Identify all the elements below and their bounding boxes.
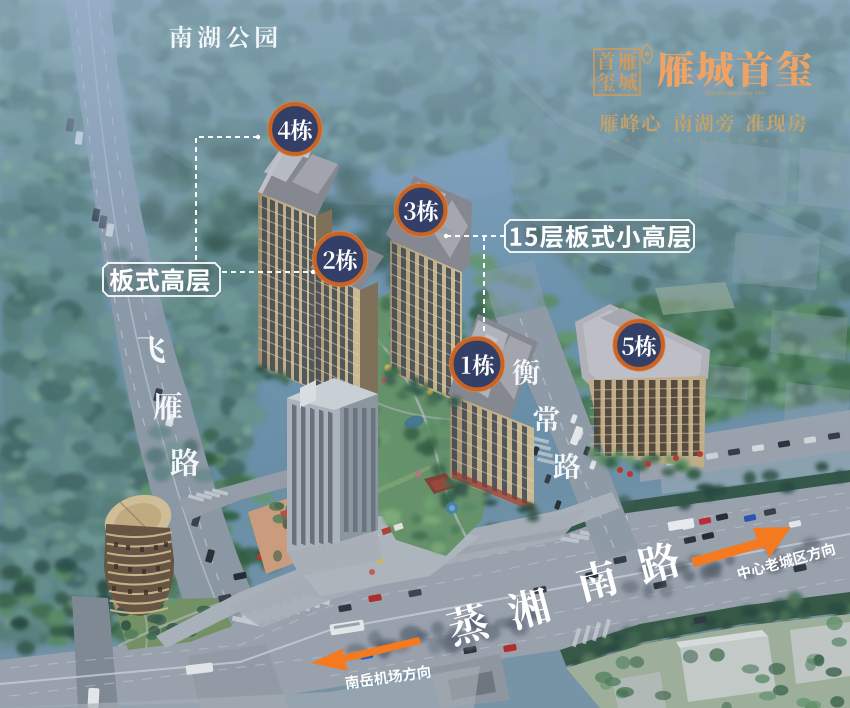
svg-text:Yanchengshouxi city: Yanchengshouxi city <box>704 88 766 97</box>
svg-text:A R V Y A N C H E N G P A R K: A R V Y A N C H E N G P A R K <box>613 138 797 145</box>
